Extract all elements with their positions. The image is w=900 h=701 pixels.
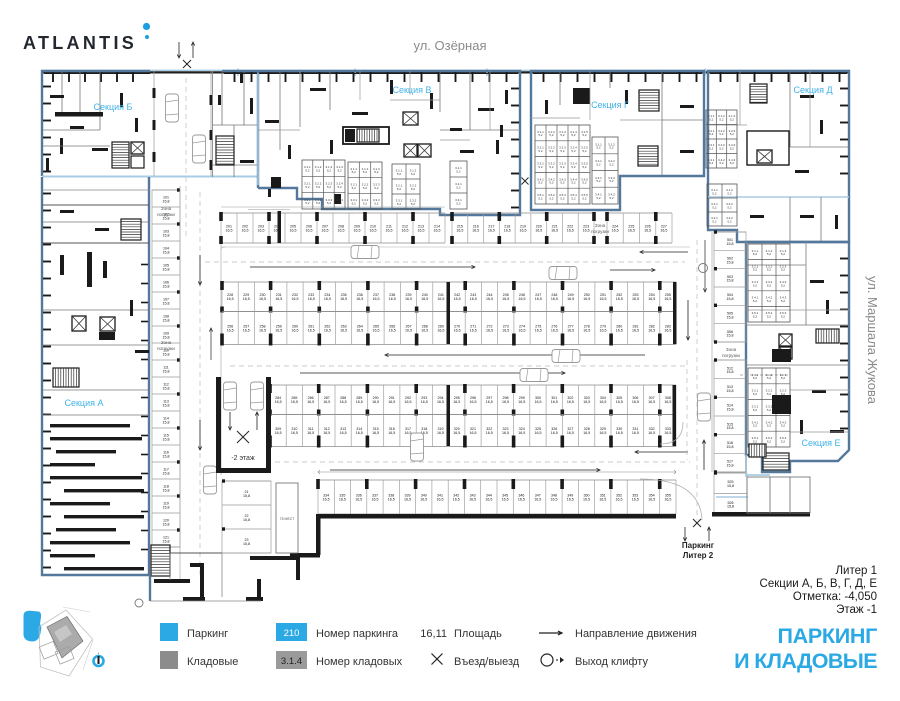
svg-text:16,5: 16,5 — [664, 297, 671, 301]
svg-text:5,2: 5,2 — [781, 376, 786, 380]
svg-text:5,2: 5,2 — [609, 196, 614, 200]
svg-text:5,2: 5,2 — [549, 196, 554, 200]
svg-text:5,2: 5,2 — [781, 424, 786, 428]
svg-text:5,2: 5,2 — [730, 161, 735, 165]
svg-text:16,5: 16,5 — [388, 400, 395, 404]
svg-text:15,8: 15,8 — [243, 494, 250, 498]
svg-text:5,2: 5,2 — [596, 196, 601, 200]
svg-text:15,8: 15,8 — [163, 199, 170, 203]
svg-text:16,5: 16,5 — [648, 297, 655, 301]
svg-text:Секция Е: Секция Е — [801, 438, 840, 448]
svg-text:15,8: 15,8 — [163, 352, 170, 356]
svg-text:5,2: 5,2 — [767, 252, 772, 256]
svg-text:16,5: 16,5 — [308, 328, 315, 332]
svg-text:16,5: 16,5 — [616, 431, 623, 435]
svg-text:5,2: 5,2 — [753, 252, 758, 256]
svg-text:16,5: 16,5 — [322, 228, 329, 232]
svg-text:5,2: 5,2 — [571, 196, 576, 200]
svg-text:16,5: 16,5 — [324, 297, 331, 301]
svg-text:16,5: 16,5 — [485, 497, 492, 501]
svg-text:16,5: 16,5 — [518, 431, 525, 435]
svg-text:5,2: 5,2 — [753, 299, 758, 303]
svg-text:16,5: 16,5 — [404, 497, 411, 501]
svg-text:5,2: 5,2 — [596, 179, 601, 183]
svg-text:5,2: 5,2 — [767, 268, 772, 272]
svg-text:16,5: 16,5 — [567, 328, 574, 332]
svg-text:16,5: 16,5 — [583, 431, 590, 435]
svg-text:16,5: 16,5 — [648, 328, 655, 332]
svg-text:5,2: 5,2 — [709, 161, 714, 165]
svg-text:15,8: 15,8 — [163, 233, 170, 237]
svg-text:5,2: 5,2 — [781, 283, 786, 287]
svg-text:16,5: 16,5 — [535, 328, 542, 332]
svg-text:5,2: 5,2 — [327, 168, 332, 172]
svg-text:5,2: 5,2 — [352, 186, 357, 190]
svg-text:16,5: 16,5 — [373, 297, 380, 301]
svg-text:5,2: 5,2 — [338, 168, 343, 172]
svg-text:5,2: 5,2 — [456, 185, 461, 189]
svg-text:16,5: 16,5 — [632, 400, 639, 404]
svg-text:16,5: 16,5 — [486, 431, 493, 435]
svg-text:5,2: 5,2 — [305, 201, 310, 205]
svg-text:5,2: 5,2 — [549, 181, 554, 185]
svg-text:16,5: 16,5 — [454, 328, 461, 332]
svg-text:16,5: 16,5 — [340, 400, 347, 404]
svg-text:Секция Б: Секция Б — [94, 102, 133, 112]
svg-text:16,5: 16,5 — [519, 297, 526, 301]
svg-text:ул. Маршала Жукова: ул. Маршала Жукова — [865, 276, 880, 405]
svg-text:5,2: 5,2 — [571, 181, 576, 185]
svg-text:16,5: 16,5 — [551, 497, 558, 501]
svg-text:15,8: 15,8 — [163, 471, 170, 475]
svg-text:16,5: 16,5 — [600, 297, 607, 301]
svg-text:16,5: 16,5 — [307, 400, 314, 404]
svg-text:16,5: 16,5 — [551, 228, 558, 232]
svg-text:5,2: 5,2 — [538, 149, 543, 153]
svg-text:5,2: 5,2 — [753, 424, 758, 428]
svg-text:16,5: 16,5 — [502, 497, 509, 501]
svg-text:5,2: 5,2 — [397, 187, 402, 191]
svg-text:16,5: 16,5 — [488, 228, 495, 232]
svg-text:15,8: 15,8 — [727, 464, 734, 468]
svg-text:16,5: 16,5 — [437, 297, 444, 301]
svg-text:Зона: Зона — [161, 206, 172, 211]
svg-text:Паркинг: Паркинг — [187, 628, 228, 640]
svg-text:5,2: 5,2 — [316, 168, 321, 172]
svg-text:16,5: 16,5 — [456, 228, 463, 232]
svg-text:16,5: 16,5 — [275, 297, 282, 301]
svg-text:16,5: 16,5 — [370, 228, 377, 232]
svg-text:5,2: 5,2 — [609, 146, 614, 150]
svg-text:16,5: 16,5 — [308, 297, 315, 301]
svg-text:16,5: 16,5 — [632, 297, 639, 301]
svg-text:16,5: 16,5 — [356, 400, 363, 404]
svg-text:5,2: 5,2 — [582, 196, 587, 200]
svg-text:16,5: 16,5 — [389, 328, 396, 332]
svg-text:16,5: 16,5 — [292, 297, 299, 301]
svg-text:16,5: 16,5 — [307, 431, 314, 435]
svg-text:16,5: 16,5 — [518, 400, 525, 404]
svg-text:16,5: 16,5 — [453, 431, 460, 435]
svg-text:погрузки: погрузки — [591, 229, 609, 234]
svg-text:16,5: 16,5 — [535, 297, 542, 301]
svg-text:16,5: 16,5 — [437, 400, 444, 404]
svg-text:Секция Г: Секция Г — [591, 100, 629, 110]
svg-text:5,2: 5,2 — [411, 202, 416, 206]
svg-text:16,5: 16,5 — [388, 497, 395, 501]
svg-text:16,5: 16,5 — [259, 328, 266, 332]
svg-text:3.1.4: 3.1.4 — [281, 656, 302, 667]
svg-text:15,8: 15,8 — [163, 386, 170, 390]
svg-text:5,2: 5,2 — [456, 169, 461, 173]
svg-text:15,8: 15,8 — [727, 370, 734, 374]
svg-text:15,8: 15,8 — [163, 403, 170, 407]
svg-text:5,2: 5,2 — [767, 299, 772, 303]
svg-text:16,5: 16,5 — [502, 400, 509, 404]
svg-text:5,2: 5,2 — [327, 185, 332, 189]
svg-text:16,5: 16,5 — [340, 431, 347, 435]
svg-text:5,2: 5,2 — [560, 165, 565, 169]
svg-text:15,8: 15,8 — [727, 484, 734, 488]
svg-text:16,5: 16,5 — [551, 328, 558, 332]
svg-text:5,2: 5,2 — [781, 252, 786, 256]
svg-text:5,2: 5,2 — [571, 133, 576, 137]
svg-text:5,2: 5,2 — [709, 146, 714, 150]
svg-text:16,5: 16,5 — [372, 431, 379, 435]
svg-text:5,2: 5,2 — [374, 170, 379, 174]
svg-text:Паркинг: Паркинг — [682, 541, 715, 550]
svg-text:16,5: 16,5 — [616, 297, 623, 301]
svg-text:5,2: 5,2 — [571, 165, 576, 169]
svg-text:210: 210 — [284, 628, 300, 639]
svg-text:5,2: 5,2 — [719, 117, 724, 121]
svg-text:16,5: 16,5 — [644, 228, 651, 232]
svg-text:16,5: 16,5 — [420, 497, 427, 501]
svg-text:16,5: 16,5 — [453, 400, 460, 404]
svg-text:16,5: 16,5 — [340, 297, 347, 301]
svg-text:5,2: 5,2 — [374, 201, 379, 205]
svg-text:16,5: 16,5 — [354, 228, 361, 232]
svg-text:16,5: 16,5 — [664, 497, 671, 501]
svg-text:5,2: 5,2 — [538, 133, 543, 137]
svg-text:Площадь: Площадь — [454, 628, 502, 640]
svg-text:16,5: 16,5 — [356, 431, 363, 435]
svg-text:5,2: 5,2 — [781, 268, 786, 272]
svg-text:Секция В: Секция В — [392, 85, 431, 95]
svg-text:16,5: 16,5 — [306, 228, 313, 232]
svg-text:5,2: 5,2 — [719, 146, 724, 150]
svg-text:16,5: 16,5 — [437, 328, 444, 332]
svg-text:5,2: 5,2 — [596, 162, 601, 166]
svg-text:5,2: 5,2 — [609, 179, 614, 183]
svg-text:16,5: 16,5 — [292, 328, 299, 332]
svg-text:16,5: 16,5 — [454, 297, 461, 301]
svg-text:16,5: 16,5 — [648, 497, 655, 501]
svg-text:5,2: 5,2 — [582, 165, 587, 169]
svg-text:5,2: 5,2 — [560, 196, 565, 200]
svg-text:5,2: 5,2 — [549, 149, 554, 153]
svg-text:16,5: 16,5 — [567, 228, 574, 232]
svg-text:15,8: 15,8 — [727, 260, 734, 264]
svg-text:5,2: 5,2 — [352, 170, 357, 174]
svg-text:16,5: 16,5 — [437, 431, 444, 435]
svg-text:16,5: 16,5 — [519, 328, 526, 332]
svg-text:16,5: 16,5 — [339, 497, 346, 501]
svg-text:Направление движения: Направление движения — [575, 628, 697, 640]
svg-text:16,5: 16,5 — [421, 297, 428, 301]
svg-text:5,2: 5,2 — [560, 133, 565, 137]
svg-text:5,2: 5,2 — [571, 149, 576, 153]
svg-text:5,2: 5,2 — [560, 181, 565, 185]
svg-text:Номер кладовых: Номер кладовых — [316, 656, 403, 668]
svg-text:16,5: 16,5 — [583, 328, 590, 332]
svg-text:15,8: 15,8 — [727, 445, 734, 449]
svg-text:Номер паркинга: Номер паркинга — [316, 628, 399, 640]
svg-text:16,5: 16,5 — [567, 431, 574, 435]
svg-text:16,5: 16,5 — [599, 431, 606, 435]
svg-text:15,8: 15,8 — [243, 518, 250, 522]
svg-text:погрузки: погрузки — [157, 212, 175, 217]
svg-text:16,5: 16,5 — [386, 228, 393, 232]
svg-text:5,2: 5,2 — [727, 219, 732, 223]
svg-text:16,5: 16,5 — [502, 297, 509, 301]
svg-text:16,5: 16,5 — [470, 400, 477, 404]
svg-text:-2 этаж: -2 этаж — [231, 455, 255, 462]
svg-text:5,2: 5,2 — [753, 314, 758, 318]
svg-text:Литер 2: Литер 2 — [683, 551, 714, 560]
svg-text:16,5: 16,5 — [567, 497, 574, 501]
svg-text:5,2: 5,2 — [767, 392, 772, 396]
svg-text:16,5: 16,5 — [402, 228, 409, 232]
svg-text:16,5: 16,5 — [388, 431, 395, 435]
svg-text:16,5: 16,5 — [567, 400, 574, 404]
svg-text:5,2: 5,2 — [753, 268, 758, 272]
svg-text:16,5: 16,5 — [632, 497, 639, 501]
svg-text:5,2: 5,2 — [538, 196, 543, 200]
svg-text:5,2: 5,2 — [730, 117, 735, 121]
svg-text:Секции А, Б, В, Г, Д, Е: Секции А, Б, В, Г, Д, Е — [760, 578, 878, 590]
svg-text:5,2: 5,2 — [767, 424, 772, 428]
svg-text:15,8: 15,8 — [163, 267, 170, 271]
svg-text:16,5: 16,5 — [616, 328, 623, 332]
svg-text:16,5: 16,5 — [664, 431, 671, 435]
svg-text:5,2: 5,2 — [767, 439, 772, 443]
svg-text:16,5: 16,5 — [472, 228, 479, 232]
svg-text:16,5: 16,5 — [628, 228, 635, 232]
svg-text:5,2: 5,2 — [767, 314, 772, 318]
svg-text:16,5: 16,5 — [664, 400, 671, 404]
svg-text:5,2: 5,2 — [538, 165, 543, 169]
svg-text:Секция А: Секция А — [64, 398, 103, 408]
svg-text:5,2: 5,2 — [767, 283, 772, 287]
svg-text:15,8: 15,8 — [727, 242, 734, 246]
svg-text:15,8: 15,8 — [163, 488, 170, 492]
svg-text:15,8: 15,8 — [727, 426, 734, 430]
svg-text:16,5: 16,5 — [405, 328, 412, 332]
svg-text:16,11: 16,11 — [420, 628, 447, 640]
svg-text:16,5: 16,5 — [291, 400, 298, 404]
svg-text:16,5: 16,5 — [535, 228, 542, 232]
svg-text:5,2: 5,2 — [305, 168, 310, 172]
svg-text:16,5: 16,5 — [356, 328, 363, 332]
svg-text:5,2: 5,2 — [753, 376, 758, 380]
svg-text:16,5: 16,5 — [226, 228, 233, 232]
svg-text:5,2: 5,2 — [712, 219, 717, 223]
svg-text:5,2: 5,2 — [582, 181, 587, 185]
svg-text:15,8: 15,8 — [727, 408, 734, 412]
svg-text:ATLANTIS: ATLANTIS — [23, 33, 137, 53]
svg-text:16,5: 16,5 — [486, 400, 493, 404]
svg-text:Зона: Зона — [161, 340, 172, 345]
svg-text:16,5: 16,5 — [583, 400, 590, 404]
svg-text:15,8: 15,8 — [163, 318, 170, 322]
svg-text:16,5: 16,5 — [470, 328, 477, 332]
svg-text:16,5: 16,5 — [583, 228, 590, 232]
svg-text:15,8: 15,8 — [727, 389, 734, 393]
svg-text:16,5: 16,5 — [258, 228, 265, 232]
svg-text:16,5: 16,5 — [291, 431, 298, 435]
svg-text:5,2: 5,2 — [719, 132, 724, 136]
svg-text:5,2: 5,2 — [411, 187, 416, 191]
svg-text:Литер 1: Литер 1 — [836, 565, 878, 577]
svg-text:Выход клифту: Выход клифту — [575, 656, 648, 668]
svg-text:16,5: 16,5 — [599, 400, 606, 404]
svg-text:5,2: 5,2 — [397, 202, 402, 206]
svg-text:И КЛАДОВЫЕ: И КЛАДОВЫЕ — [734, 649, 877, 673]
svg-text:Отметка: -4,050: Отметка: -4,050 — [793, 591, 877, 603]
svg-text:15,8: 15,8 — [163, 522, 170, 526]
svg-text:16,5: 16,5 — [470, 297, 477, 301]
svg-text:16,5: 16,5 — [323, 431, 330, 435]
svg-text:5,2: 5,2 — [727, 205, 732, 209]
svg-text:16,5: 16,5 — [518, 497, 525, 501]
svg-text:16,5: 16,5 — [470, 431, 477, 435]
svg-text:16,5: 16,5 — [664, 328, 671, 332]
svg-text:16,5: 16,5 — [372, 400, 379, 404]
svg-text:5,2: 5,2 — [609, 162, 614, 166]
svg-text:16,5: 16,5 — [323, 400, 330, 404]
svg-text:16,5: 16,5 — [648, 431, 655, 435]
svg-text:16,5: 16,5 — [275, 431, 282, 435]
svg-text:16,5: 16,5 — [243, 328, 250, 332]
svg-text:ул. Озёрная: ул. Озёрная — [413, 38, 486, 53]
svg-text:15,8: 15,8 — [163, 369, 170, 373]
svg-text:5,2: 5,2 — [549, 165, 554, 169]
svg-text:5,2: 5,2 — [538, 181, 543, 185]
svg-text:16,5: 16,5 — [504, 228, 511, 232]
svg-text:16,5: 16,5 — [534, 497, 541, 501]
svg-text:16,5: 16,5 — [612, 228, 619, 232]
svg-text:16,5: 16,5 — [632, 328, 639, 332]
svg-text:16,5: 16,5 — [338, 228, 345, 232]
svg-text:15,8: 15,8 — [163, 420, 170, 424]
svg-text:16,5: 16,5 — [405, 297, 412, 301]
svg-text:16,5: 16,5 — [290, 228, 297, 232]
svg-text:16,5: 16,5 — [600, 328, 607, 332]
svg-text:15,8: 15,8 — [163, 505, 170, 509]
svg-text:погрузки: погрузки — [722, 353, 740, 358]
svg-text:16,5: 16,5 — [243, 297, 250, 301]
svg-text:16,5: 16,5 — [373, 328, 380, 332]
svg-text:5,2: 5,2 — [712, 191, 717, 195]
svg-text:5,2: 5,2 — [730, 132, 735, 136]
svg-text:5,2: 5,2 — [327, 201, 332, 205]
svg-text:16,5: 16,5 — [227, 328, 234, 332]
svg-text:15,8: 15,8 — [727, 334, 734, 338]
svg-text:Зона: Зона — [595, 223, 606, 228]
svg-text:5,2: 5,2 — [305, 185, 310, 189]
svg-text:16,5: 16,5 — [616, 400, 623, 404]
svg-text:15,8: 15,8 — [163, 335, 170, 339]
svg-text:5,2: 5,2 — [411, 172, 416, 176]
svg-text:5,2: 5,2 — [338, 185, 343, 189]
svg-text:5,2: 5,2 — [709, 117, 714, 121]
svg-text:16,5: 16,5 — [242, 228, 249, 232]
svg-text:5,2: 5,2 — [352, 201, 357, 205]
svg-text:15,8: 15,8 — [163, 539, 170, 543]
svg-text:5,2: 5,2 — [456, 201, 461, 205]
svg-text:5,2: 5,2 — [727, 191, 732, 195]
svg-text:15,8: 15,8 — [163, 284, 170, 288]
svg-text:16,5: 16,5 — [599, 497, 606, 501]
svg-text:16,5: 16,5 — [583, 297, 590, 301]
svg-text:Этаж -1: Этаж -1 — [836, 604, 877, 616]
svg-text:16,5: 16,5 — [648, 400, 655, 404]
svg-text:16,5: 16,5 — [535, 431, 542, 435]
svg-text:5,2: 5,2 — [397, 172, 402, 176]
svg-text:16,5: 16,5 — [356, 297, 363, 301]
svg-text:5,2: 5,2 — [781, 299, 786, 303]
svg-text:16,5: 16,5 — [323, 497, 330, 501]
svg-text:5,2: 5,2 — [781, 314, 786, 318]
svg-text:16,5: 16,5 — [583, 497, 590, 501]
svg-text:5,2: 5,2 — [582, 149, 587, 153]
svg-text:Зона: Зона — [726, 347, 737, 352]
svg-text:16,5: 16,5 — [421, 400, 428, 404]
svg-text:15,8: 15,8 — [727, 315, 734, 319]
svg-text:16,5: 16,5 — [275, 328, 282, 332]
svg-text:16,5: 16,5 — [421, 328, 428, 332]
svg-text:5,2: 5,2 — [374, 186, 379, 190]
svg-text:5,2: 5,2 — [712, 205, 717, 209]
svg-text:5,2: 5,2 — [719, 161, 724, 165]
svg-text:Кладовые: Кладовые — [187, 656, 238, 668]
svg-text:16,5: 16,5 — [372, 497, 379, 501]
svg-text:16,5: 16,5 — [520, 228, 527, 232]
svg-text:15,8: 15,8 — [727, 297, 734, 301]
svg-text:16,5: 16,5 — [324, 328, 331, 332]
svg-text:5,2: 5,2 — [730, 146, 735, 150]
svg-text:15,8: 15,8 — [243, 542, 250, 546]
svg-text:16,5: 16,5 — [434, 228, 441, 232]
svg-text:15,8: 15,8 — [163, 437, 170, 441]
svg-text:16,5: 16,5 — [502, 328, 509, 332]
svg-text:16,5: 16,5 — [355, 497, 362, 501]
svg-text:Въезд/выезд: Въезд/выезд — [454, 656, 520, 668]
svg-text:16,5: 16,5 — [486, 297, 493, 301]
svg-text:16,5: 16,5 — [469, 497, 476, 501]
svg-text:16,5: 16,5 — [275, 400, 282, 404]
svg-text:16,5: 16,5 — [551, 297, 558, 301]
svg-text:15,8: 15,8 — [163, 301, 170, 305]
svg-text:16,5: 16,5 — [389, 297, 396, 301]
svg-text:16,5: 16,5 — [502, 431, 509, 435]
svg-text:16,5: 16,5 — [535, 400, 542, 404]
svg-text:5,2: 5,2 — [753, 283, 758, 287]
svg-text:16,5: 16,5 — [632, 431, 639, 435]
svg-text:75 МЕСТ: 75 МЕСТ — [280, 517, 296, 521]
svg-text:16,5: 16,5 — [340, 328, 347, 332]
